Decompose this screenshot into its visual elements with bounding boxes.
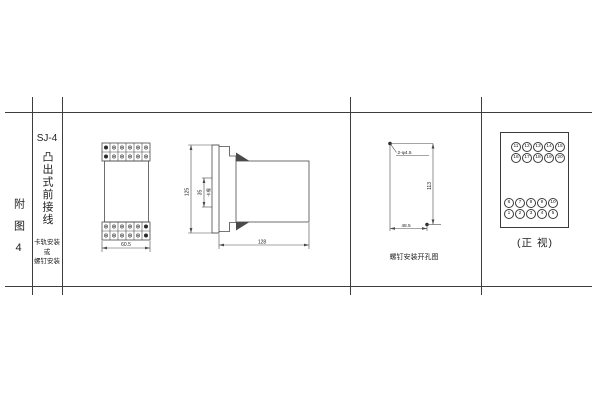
bottom-clip-profile	[219, 223, 236, 232]
bottom-bevel	[236, 222, 250, 231]
mount-note-2: 或	[30, 249, 64, 256]
drill-plan-caption: 螺钉安装开孔图	[378, 252, 450, 262]
front-elevation-drawing: 60.5	[95, 135, 175, 260]
figure-number-label: 附图4	[11, 171, 27, 291]
terminal: 9	[537, 198, 547, 208]
front-width-dim: 60.5	[121, 242, 131, 248]
terminal: 8	[526, 198, 536, 208]
table-divider-4	[481, 97, 482, 295]
hole-vertical-dim: 113	[427, 182, 433, 190]
terminal-row-bottom-1: 6 7 8 9 10	[504, 198, 558, 208]
side-elevation-drawing: 125 35 卡槽 128	[180, 138, 320, 253]
mount-note-3: 螺钉安装	[30, 258, 64, 265]
hole-leader-line	[391, 145, 397, 153]
terminal-row-top-2: 16 17 18 19 20	[511, 153, 565, 163]
terminal: 6	[504, 198, 514, 208]
filled-screw-icon	[144, 225, 148, 229]
terminal: 4	[537, 209, 547, 219]
terminal: 11	[511, 142, 521, 152]
table-rule-top	[5, 112, 592, 113]
terminal-row-top-1: 11 12 13 14 15	[511, 142, 565, 152]
drill-plan-drawing: 2-φ4.5 113 48.5	[378, 138, 450, 234]
terminal: 2	[515, 209, 525, 219]
terminal: 3	[526, 209, 536, 219]
terminal-arrangement-box: 11 12 13 14 15 16 17 18 19 20 6 7 8 9 10…	[500, 132, 569, 228]
terminal: 20	[555, 153, 565, 163]
mount-title-label: 凸出式前接线	[39, 151, 55, 235]
side-depth-dim: 128	[258, 240, 267, 246]
table-divider-3	[350, 97, 351, 295]
slot-label: 卡槽	[205, 188, 212, 197]
terminal-view-caption: (正 视)	[495, 235, 575, 250]
terminal: 19	[544, 153, 554, 163]
relay-body-front	[105, 161, 149, 222]
terminal: 10	[548, 198, 558, 208]
front-plate	[212, 145, 219, 233]
top-bevel	[236, 153, 250, 162]
scanned-drawing-page: 附图4 SJ-4 凸出式前接线 卡轨安装 或 螺钉安装	[0, 0, 600, 400]
terminal: 1	[504, 209, 514, 219]
side-height-dim: 125	[185, 188, 191, 197]
filled-screw-icon	[104, 155, 108, 159]
hole-size-label: 2-φ4.5	[398, 150, 412, 156]
model-label: SJ-4	[32, 133, 62, 144]
mount-title-cell: 凸出式前接线	[32, 151, 62, 235]
hole-horizontal-dim: 48.5	[401, 223, 411, 229]
relay-body-side	[236, 161, 309, 222]
terminal: 17	[522, 153, 532, 163]
table-rule-bottom	[5, 286, 592, 287]
slot-width-dim: 35	[198, 190, 204, 196]
top-clip-profile	[219, 147, 236, 162]
filled-screw-icon	[104, 146, 108, 150]
terminal-row-bottom-2: 1 2 3 4 5	[504, 209, 558, 219]
terminal: 5	[548, 209, 558, 219]
terminal: 16	[511, 153, 521, 163]
mount-note-1: 卡轨安装	[30, 239, 64, 246]
terminal: 12	[522, 142, 532, 152]
filled-screw-icon	[144, 234, 148, 238]
terminal: 7	[515, 198, 525, 208]
terminal: 13	[533, 142, 543, 152]
table-divider-2	[62, 97, 63, 295]
terminal: 15	[555, 142, 565, 152]
terminal: 18	[533, 153, 543, 163]
terminal: 14	[544, 142, 554, 152]
figure-number-cell: 附图4	[5, 171, 32, 291]
